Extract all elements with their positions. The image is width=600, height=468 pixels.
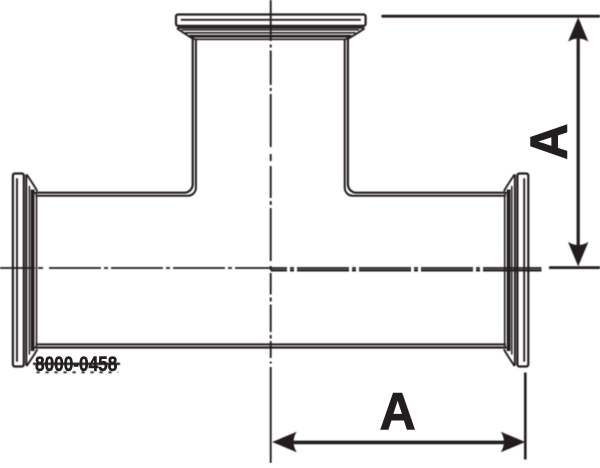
- svg-text:A: A: [380, 382, 416, 440]
- svg-text:A: A: [520, 124, 578, 160]
- svg-text:8000-0458: 8000-0458: [35, 354, 118, 377]
